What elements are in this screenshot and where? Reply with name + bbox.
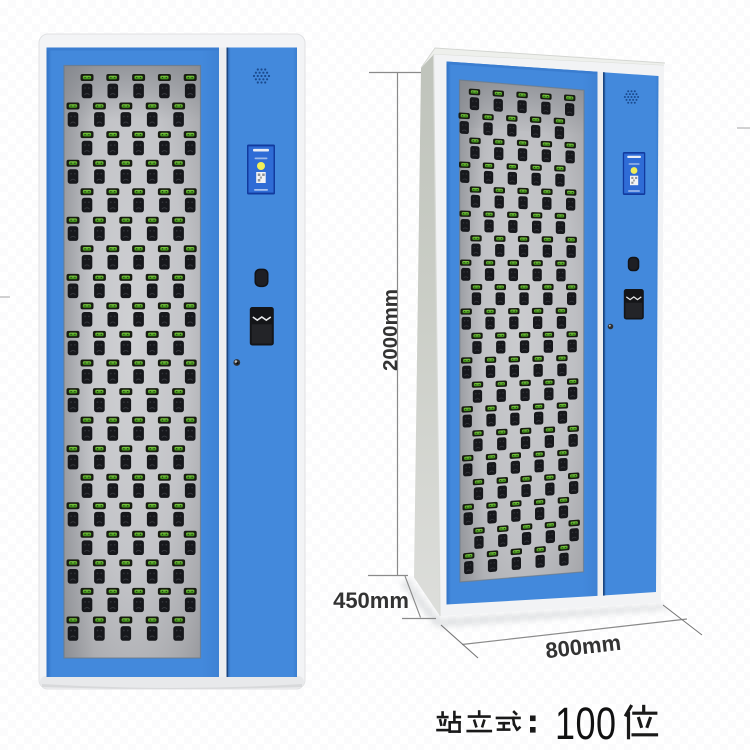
svg-text:2000mm: 2000mm	[379, 289, 402, 371]
svg-text:100: 100	[555, 698, 616, 749]
svg-text:800mm: 800mm	[544, 630, 622, 663]
svg-text:450mm: 450mm	[333, 588, 409, 613]
